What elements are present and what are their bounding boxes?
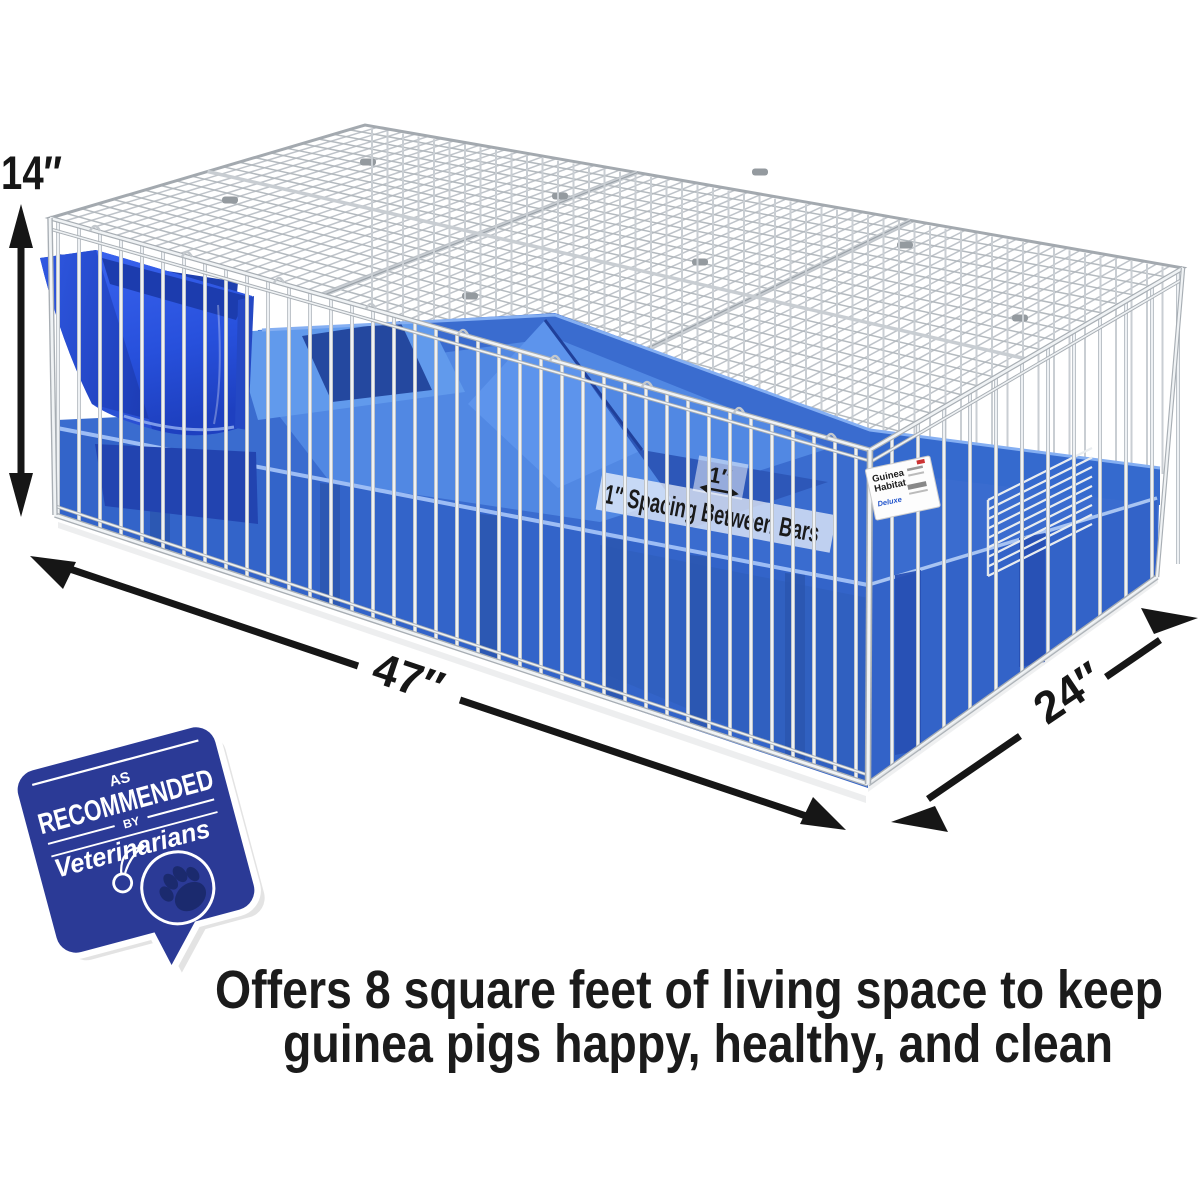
svg-text:Offers 8 square feet of living: Offers 8 square feet of living space to … [215,960,1163,1020]
svg-text:14″: 14″ [1,146,62,199]
svg-text:guinea pigs happy, healthy, an: guinea pigs happy, healthy, and clean [283,1014,1113,1074]
